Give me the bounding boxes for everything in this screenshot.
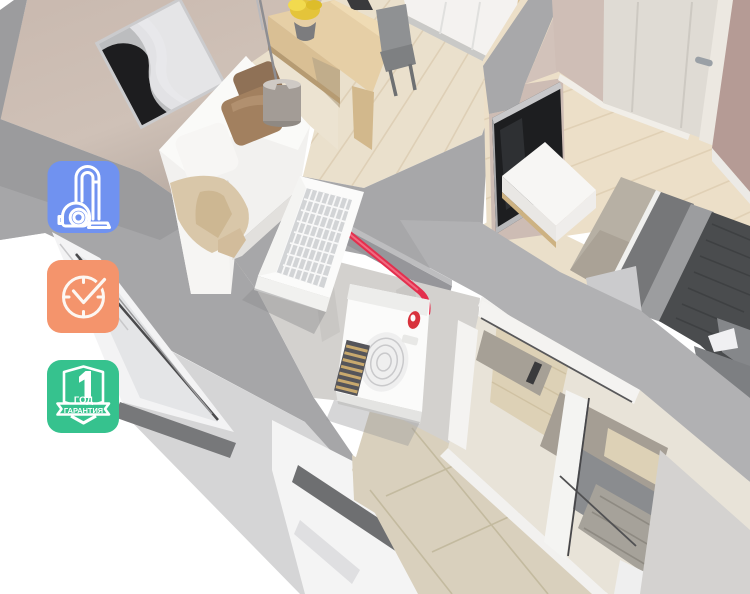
svg-text:ГОД: ГОД xyxy=(74,395,94,406)
svg-text:ГАРАНТИЯ: ГАРАНТИЯ xyxy=(64,406,103,415)
